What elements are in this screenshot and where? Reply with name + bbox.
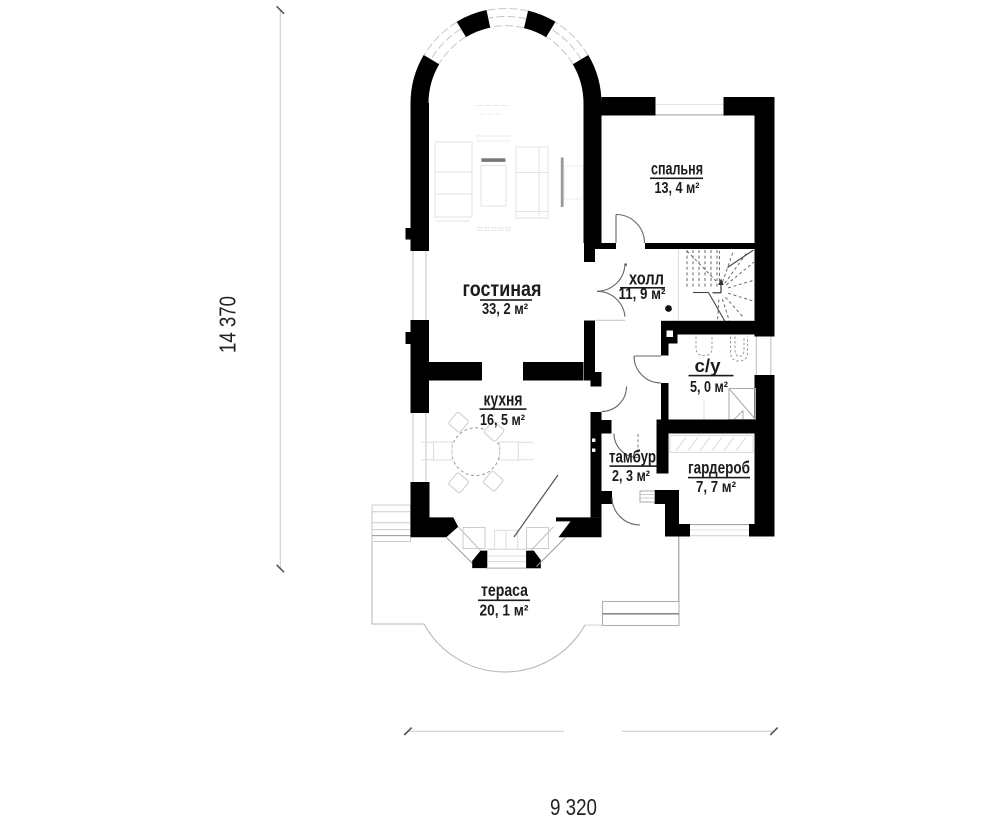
svg-text:11, 9 м²: 11, 9 м² bbox=[619, 286, 666, 303]
svg-text:гостиная: гостиная bbox=[463, 278, 542, 301]
svg-text:9 320: 9 320 bbox=[550, 794, 597, 820]
svg-text:кухня: кухня bbox=[484, 389, 523, 410]
svg-text:16, 5 м²: 16, 5 м² bbox=[480, 412, 525, 429]
svg-text:20, 1 м²: 20, 1 м² bbox=[480, 603, 529, 620]
svg-text:с/у: с/у bbox=[695, 355, 722, 376]
svg-text:спальня: спальня bbox=[651, 159, 703, 179]
svg-text:5, 0 м²: 5, 0 м² bbox=[690, 379, 728, 396]
svg-text:33, 2 м²: 33, 2 м² bbox=[482, 301, 528, 318]
svg-text:2, 3 м²: 2, 3 м² bbox=[612, 468, 650, 485]
svg-text:7, 7 м²: 7, 7 м² bbox=[696, 479, 736, 496]
svg-text:тамбур: тамбур bbox=[609, 447, 656, 467]
svg-text:тераса: тераса bbox=[481, 580, 528, 600]
svg-text:гардероб: гардероб bbox=[688, 458, 750, 478]
svg-text:14 370: 14 370 bbox=[215, 296, 241, 353]
svg-text:13, 4 м²: 13, 4 м² bbox=[655, 180, 700, 197]
